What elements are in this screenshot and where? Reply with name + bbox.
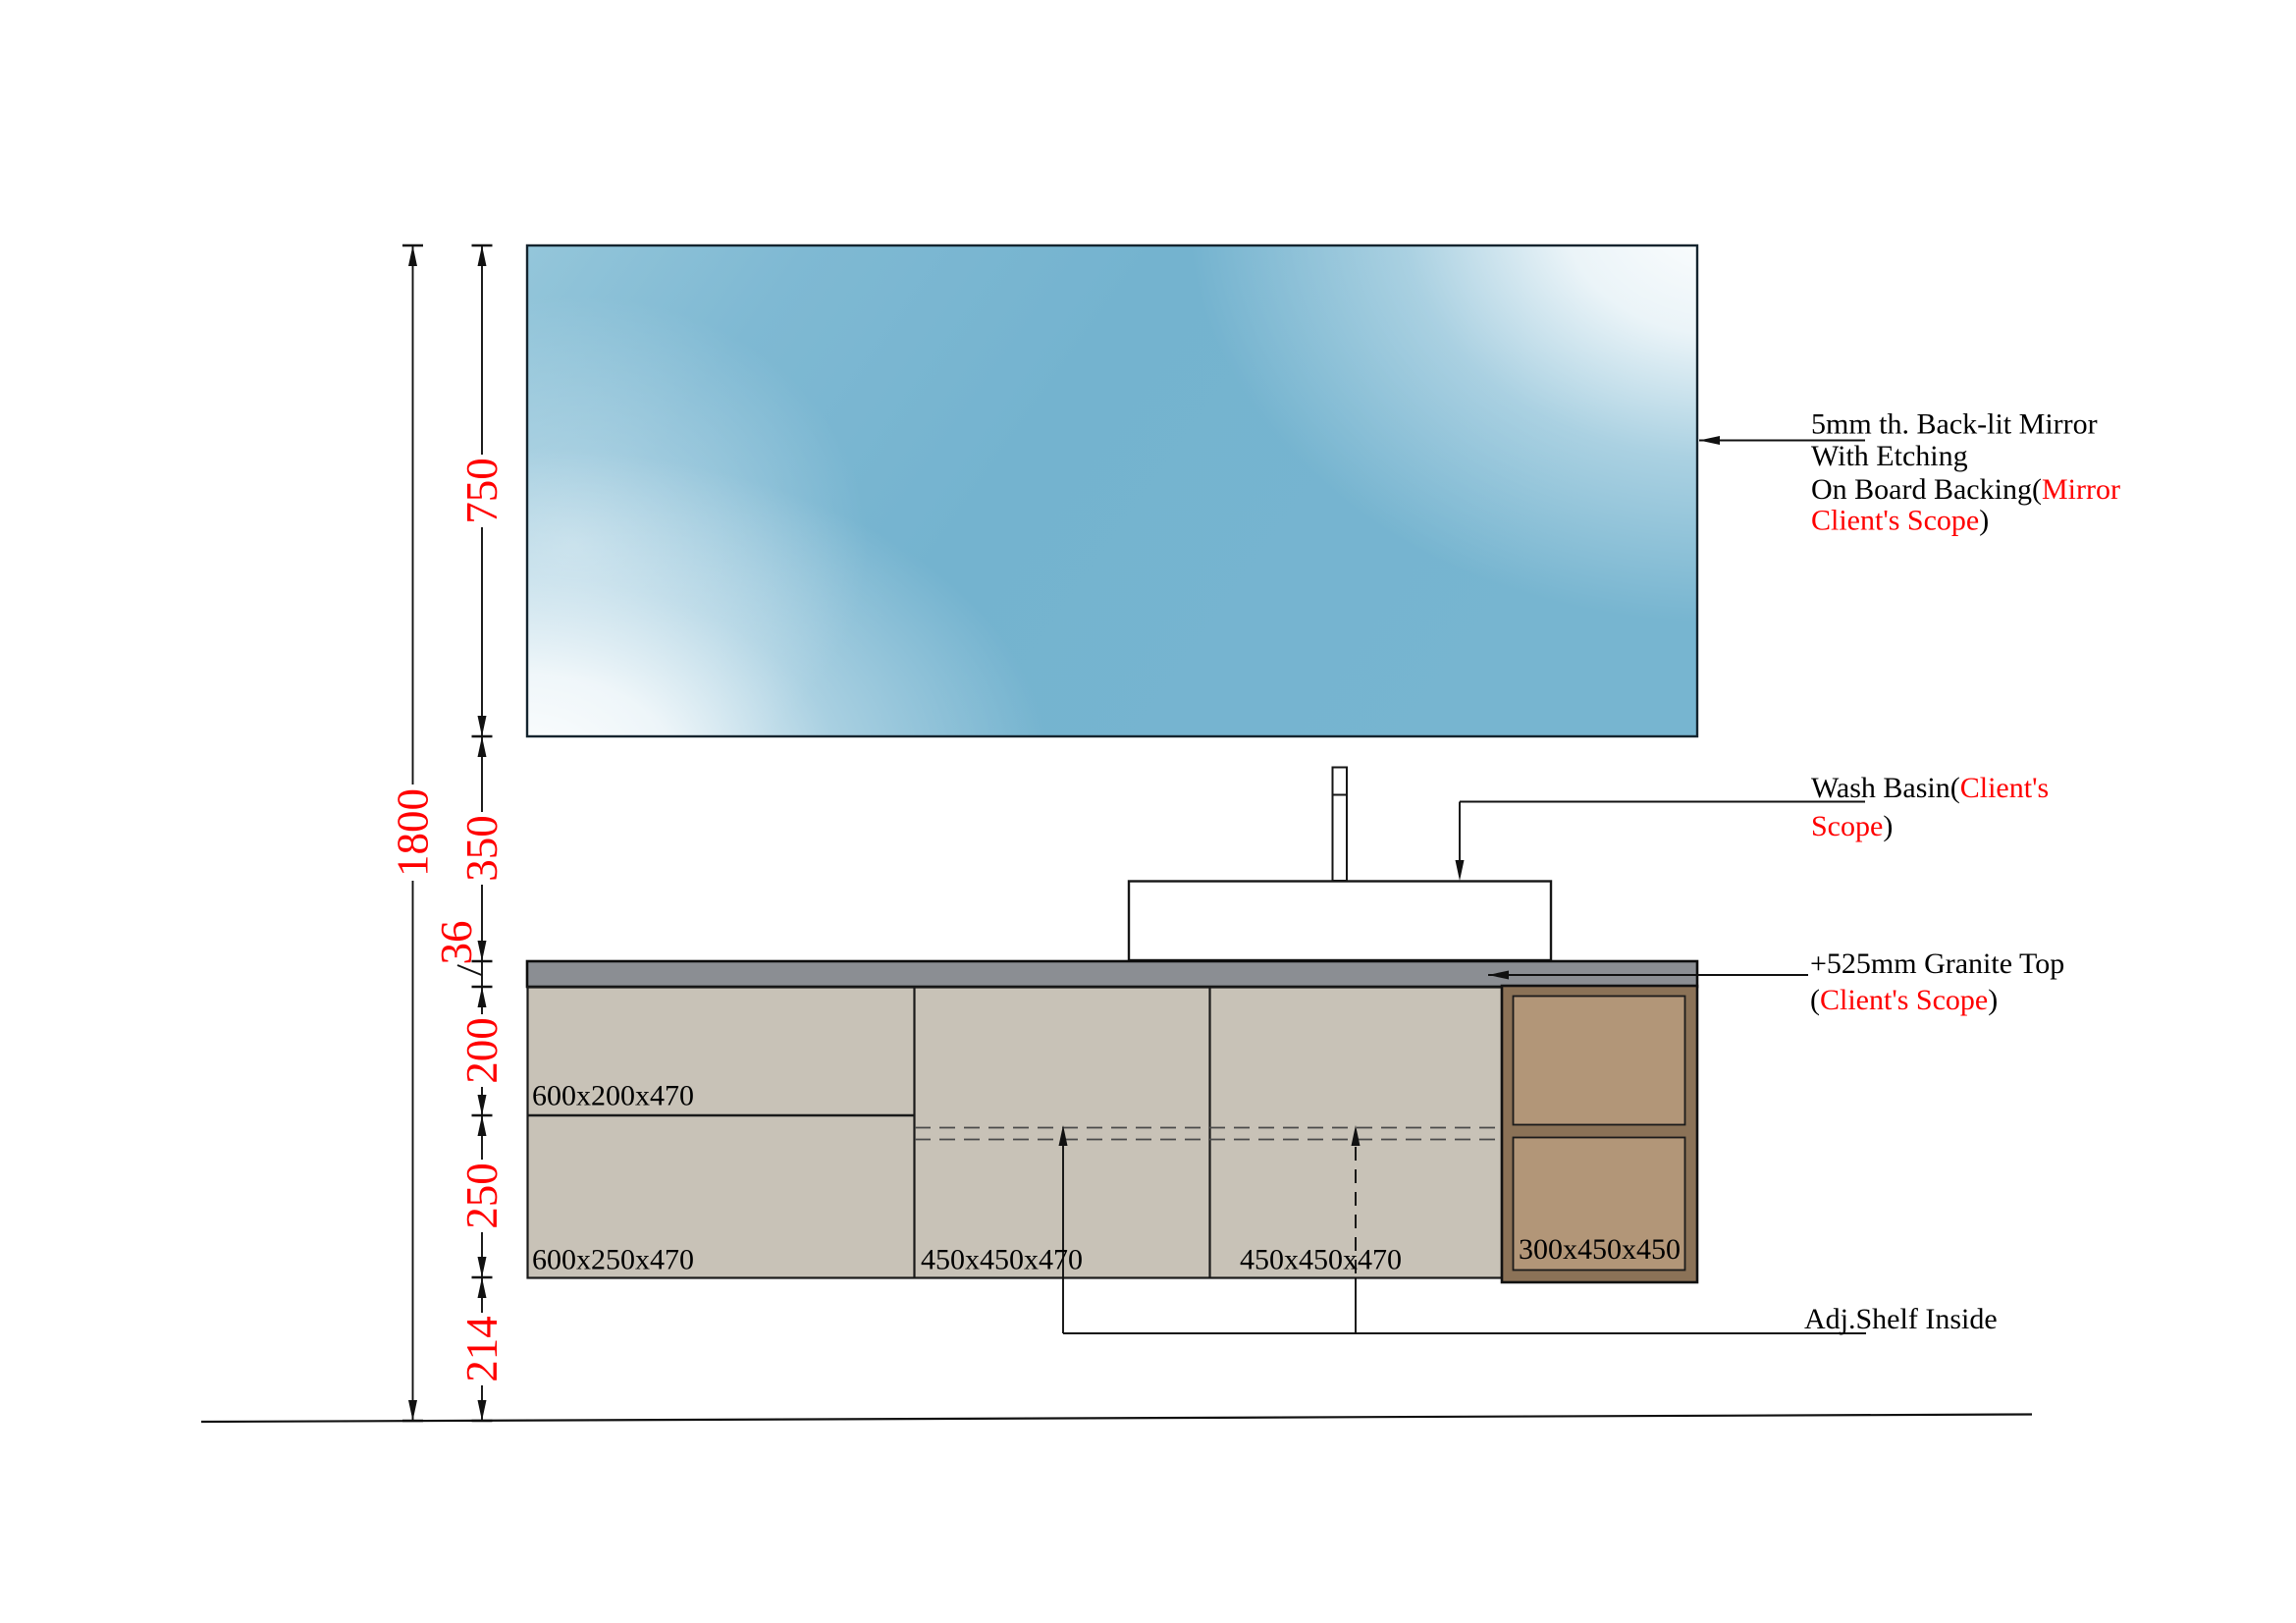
svg-text:Wash Basin(Client's: Wash Basin(Client's	[1811, 772, 2049, 804]
svg-text:450x450x470: 450x450x470	[1240, 1244, 1402, 1276]
svg-text:On Board Backing(Mirror: On Board Backing(Mirror	[1811, 473, 2120, 506]
svg-text:600x250x470: 600x250x470	[532, 1244, 694, 1276]
svg-text:214: 214	[457, 1316, 507, 1382]
svg-text:36: 36	[432, 921, 481, 965]
svg-text:Adj.Shelf Inside: Adj.Shelf Inside	[1804, 1303, 1998, 1335]
svg-text:750: 750	[457, 458, 507, 524]
svg-text:1800: 1800	[389, 788, 438, 877]
svg-text:600x200x470: 600x200x470	[532, 1080, 694, 1112]
svg-text:+525mm Granite Top: +525mm Granite Top	[1810, 947, 2064, 980]
svg-text:(Client's Scope): (Client's Scope)	[1810, 984, 1998, 1016]
svg-text:200: 200	[457, 1017, 507, 1084]
svg-text:Scope): Scope)	[1811, 810, 1893, 842]
svg-text:With Etching: With Etching	[1811, 440, 1968, 472]
svg-text:250: 250	[457, 1163, 507, 1229]
svg-text:Client's Scope): Client's Scope)	[1811, 505, 1989, 537]
svg-text:300x450x450: 300x450x450	[1519, 1233, 1681, 1266]
svg-text:350: 350	[457, 815, 507, 882]
svg-text:450x450x470: 450x450x470	[921, 1244, 1083, 1276]
svg-text:5mm th. Back-lit Mirror: 5mm th. Back-lit Mirror	[1811, 408, 2098, 441]
